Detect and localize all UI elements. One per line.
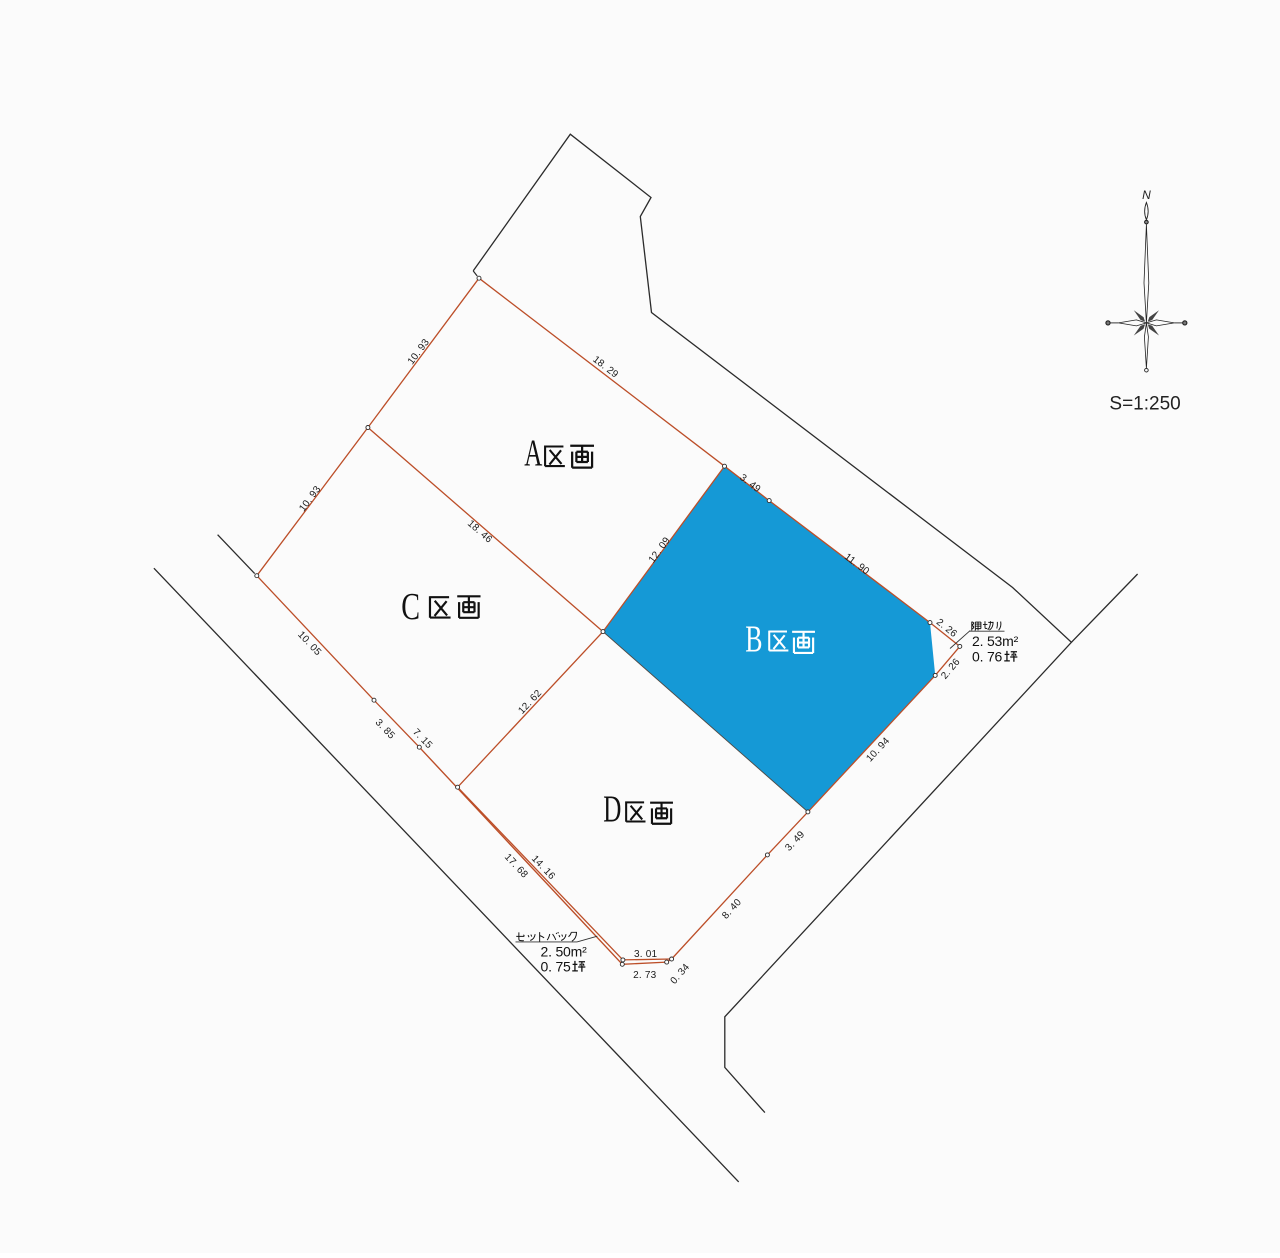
svg-text:D: D (603, 787, 621, 829)
svg-text:0. 76: 0. 76 (972, 648, 1003, 664)
svg-text:2. 50m²: 2. 50m² (541, 944, 588, 960)
svg-text:2. 73: 2. 73 (633, 970, 656, 981)
svg-text:C: C (401, 586, 420, 628)
svg-text:A: A (524, 431, 543, 473)
svg-text:S=1:250: S=1:250 (1109, 394, 1180, 415)
svg-text:N: N (1142, 188, 1151, 202)
svg-text:0. 75: 0. 75 (541, 958, 572, 974)
svg-text:3. 01: 3. 01 (634, 949, 657, 960)
svg-text:B: B (745, 619, 762, 661)
svg-text:2. 53m²: 2. 53m² (972, 633, 1019, 649)
